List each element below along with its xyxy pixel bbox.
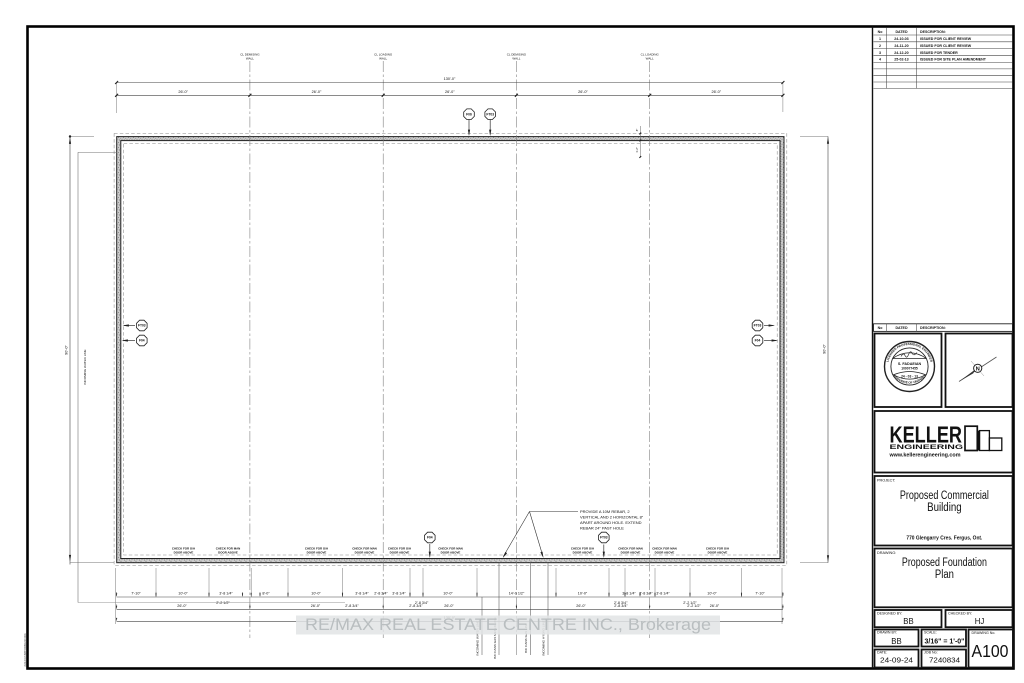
svg-text:8'-0": 8'-0" bbox=[262, 591, 270, 595]
svg-text:24-09-24: 24-09-24 bbox=[880, 655, 913, 664]
svg-text:90'-0": 90'-0" bbox=[65, 345, 69, 355]
svg-text:90'-0": 90'-0" bbox=[822, 344, 826, 354]
svg-text:2'-2 1/2": 2'-2 1/2" bbox=[216, 601, 230, 605]
svg-text:24-10-03: 24-10-03 bbox=[894, 37, 908, 41]
svg-text:www.kellerengineering.com: www.kellerengineering.com bbox=[889, 453, 961, 459]
svg-text:Building: Building bbox=[927, 502, 962, 514]
svg-text:DESCRIPTION:: DESCRIPTION: bbox=[920, 30, 946, 34]
svg-text:DRAWN BY:: DRAWN BY: bbox=[877, 631, 897, 635]
svg-text:Proposed Commercial: Proposed Commercial bbox=[900, 490, 989, 502]
svg-text:A100: A100 bbox=[972, 641, 1009, 661]
svg-text:DOOR ABOVE: DOOR ABOVE bbox=[621, 551, 641, 555]
svg-text:7'-10": 7'-10" bbox=[131, 591, 141, 595]
svg-text:F04: F04 bbox=[139, 339, 145, 343]
svg-text:1: 1 bbox=[879, 37, 881, 41]
svg-text:4: 4 bbox=[879, 58, 881, 62]
svg-text:2'-8 3/4": 2'-8 3/4" bbox=[614, 604, 628, 608]
svg-text:7240834: 7240834 bbox=[929, 655, 960, 664]
svg-text:3'-8 1/4": 3'-8 1/4" bbox=[656, 591, 670, 595]
svg-text:DATED: DATED bbox=[895, 30, 908, 34]
svg-text:24-12-20: 24-12-20 bbox=[894, 51, 908, 55]
svg-text:25-02-13: 25-02-13 bbox=[894, 58, 908, 62]
svg-text:7'-10": 7'-10" bbox=[755, 591, 765, 595]
svg-text:WALL: WALL bbox=[512, 57, 520, 61]
svg-text:3'-8 1/4": 3'-8 1/4" bbox=[355, 591, 369, 595]
svg-text:N: N bbox=[976, 367, 980, 373]
svg-text:DESIGNED BY:: DESIGNED BY: bbox=[877, 612, 902, 616]
svg-text:DOOR ABOVE: DOOR ABOVE bbox=[655, 551, 675, 555]
svg-text:ISSUED FOR SITE PLAN AMENDMENT: ISSUED FOR SITE PLAN AMENDMENT bbox=[920, 58, 987, 62]
svg-text:WALL: WALL bbox=[646, 57, 654, 61]
svg-text:2'-8 3/4": 2'-8 3/4" bbox=[345, 604, 359, 608]
svg-text:ISSUED FOR CLIENT REVIEW: ISSUED FOR CLIENT REVIEW bbox=[920, 37, 972, 41]
svg-text:3/16" = 1'-0": 3/16" = 1'-0" bbox=[925, 637, 965, 646]
svg-text:CHECKED BY:: CHECKED BY: bbox=[948, 612, 972, 616]
svg-text:26'-0": 26'-0" bbox=[711, 90, 721, 94]
svg-text:BB: BB bbox=[903, 617, 913, 626]
svg-text:2'-8 3/4": 2'-8 3/4" bbox=[639, 591, 653, 595]
svg-text:F04: F04 bbox=[755, 339, 761, 343]
svg-text:8": 8" bbox=[635, 129, 639, 132]
svg-text:24-09-24 1:21 PM K:\7240834\A: 24-09-24 1:21 PM K:\7240834\A100.DWG bbox=[23, 633, 27, 666]
svg-text:DATE:: DATE: bbox=[877, 651, 887, 655]
svg-text:HJ: HJ bbox=[975, 617, 985, 626]
svg-text:1'-2": 1'-2" bbox=[635, 147, 639, 153]
svg-text:DOOR ABOVE: DOOR ABOVE bbox=[441, 551, 461, 555]
svg-text:FT03: FT03 bbox=[138, 324, 146, 328]
svg-text:PROVIDE A 10M REBAR, 2: PROVIDE A 10M REBAR, 2 bbox=[580, 509, 630, 514]
svg-text:WALL: WALL bbox=[379, 57, 387, 61]
svg-text:INCOMING WATER LINE: INCOMING WATER LINE bbox=[83, 349, 87, 384]
svg-text:REBAR 24" PAST HOLE: REBAR 24" PAST HOLE bbox=[580, 526, 624, 531]
svg-text:No: No bbox=[878, 30, 884, 34]
svg-text:26'-0": 26'-0" bbox=[576, 604, 586, 608]
svg-text:24 - 03 - 13: 24 - 03 - 13 bbox=[901, 374, 918, 378]
svg-text:130'-0": 130'-0" bbox=[444, 77, 456, 81]
svg-text:3: 3 bbox=[879, 51, 881, 55]
svg-text:14'-0 1/2": 14'-0 1/2" bbox=[509, 591, 525, 595]
svg-text:FT03: FT03 bbox=[600, 536, 608, 540]
svg-text:2: 2 bbox=[879, 44, 881, 48]
svg-text:JOB No:: JOB No: bbox=[924, 651, 938, 655]
svg-text:DRAWING No.: DRAWING No. bbox=[972, 631, 996, 635]
svg-text:PROJECT:: PROJECT: bbox=[877, 479, 895, 483]
svg-text:24-11-20: 24-11-20 bbox=[894, 44, 908, 48]
svg-text:DESCRIPTION:: DESCRIPTION: bbox=[920, 326, 946, 330]
svg-text:2'-2 1/2": 2'-2 1/2" bbox=[687, 604, 701, 608]
svg-text:3'-8 1/4": 3'-8 1/4" bbox=[392, 591, 406, 595]
svg-text:DOOR ABOVE: DOOR ABOVE bbox=[390, 551, 410, 555]
svg-text:S. FADAEIAN: S. FADAEIAN bbox=[898, 362, 922, 366]
svg-text:ENGINEERING: ENGINEERING bbox=[890, 444, 964, 451]
svg-text:2'-8 3/4": 2'-8 3/4" bbox=[374, 591, 388, 595]
svg-text:26'-0": 26'-0" bbox=[311, 604, 321, 608]
svg-text:26'-0": 26'-0" bbox=[445, 90, 455, 94]
svg-text:BB: BB bbox=[891, 637, 901, 646]
svg-text:10'-0": 10'-0" bbox=[178, 591, 188, 595]
svg-text:10'-0": 10'-0" bbox=[443, 591, 453, 595]
svg-text:DOOR ABOVE: DOOR ABOVE bbox=[218, 551, 238, 555]
svg-text:No: No bbox=[878, 326, 884, 330]
svg-text:FT03: FT03 bbox=[486, 112, 494, 116]
svg-text:F04: F04 bbox=[427, 536, 433, 540]
svg-text:RE/MAX REAL ESTATE CENTRE INC.: RE/MAX REAL ESTATE CENTRE INC., Brokerag… bbox=[305, 615, 711, 634]
svg-text:10'-0": 10'-0" bbox=[311, 591, 321, 595]
svg-text:Plan: Plan bbox=[935, 569, 954, 581]
svg-text:DOOR ABOVE: DOOR ABOVE bbox=[174, 551, 194, 555]
svg-text:SCALE:: SCALE: bbox=[924, 631, 937, 635]
svg-text:26'-0": 26'-0" bbox=[444, 604, 454, 608]
svg-text:3'-8 1/4": 3'-8 1/4" bbox=[622, 591, 636, 595]
svg-text:VERTICAL AND 2 HORIZONTAL 8": VERTICAL AND 2 HORIZONTAL 8" bbox=[580, 515, 644, 520]
svg-text:FT03: FT03 bbox=[754, 324, 762, 328]
svg-text:DOOR ABOVE: DOOR ABOVE bbox=[355, 551, 375, 555]
svg-text:2'-8 3/4": 2'-8 3/4" bbox=[409, 604, 423, 608]
svg-text:DRAWING:: DRAWING: bbox=[877, 551, 896, 555]
svg-text:Proposed Foundation: Proposed Foundation bbox=[902, 557, 987, 569]
svg-text:WALL: WALL bbox=[246, 57, 254, 61]
svg-text:F06: F06 bbox=[466, 112, 472, 116]
svg-text:26'-0": 26'-0" bbox=[177, 604, 187, 608]
svg-text:ISSUED FOR TENDER: ISSUED FOR TENDER bbox=[920, 51, 958, 55]
svg-text:APART AROUND HOLE. EXTEND: APART AROUND HOLE. EXTEND bbox=[580, 520, 642, 525]
svg-text:DOOR ABOVE: DOOR ABOVE bbox=[307, 551, 327, 555]
svg-text:100077455: 100077455 bbox=[901, 367, 918, 371]
svg-text:DATED: DATED bbox=[895, 326, 908, 330]
svg-text:26'-0": 26'-0" bbox=[578, 90, 588, 94]
svg-text:DOOR ABOVE: DOOR ABOVE bbox=[573, 551, 593, 555]
svg-text:26'-0": 26'-0" bbox=[178, 90, 188, 94]
svg-text:10'-0": 10'-0" bbox=[707, 591, 717, 595]
svg-text:770 Glengarry Cres. Fergus, On: 770 Glengarry Cres. Fergus, Ont. bbox=[906, 535, 982, 541]
svg-text:26'-0": 26'-0" bbox=[312, 90, 322, 94]
svg-text:26'-0": 26'-0" bbox=[710, 604, 720, 608]
svg-text:DOOR ABOVE: DOOR ABOVE bbox=[708, 551, 728, 555]
svg-text:ISSUED FOR CLIENT REVIEW: ISSUED FOR CLIENT REVIEW bbox=[920, 44, 972, 48]
svg-text:10'-0": 10'-0" bbox=[578, 591, 588, 595]
svg-text:3'-8 1/4": 3'-8 1/4" bbox=[219, 591, 233, 595]
